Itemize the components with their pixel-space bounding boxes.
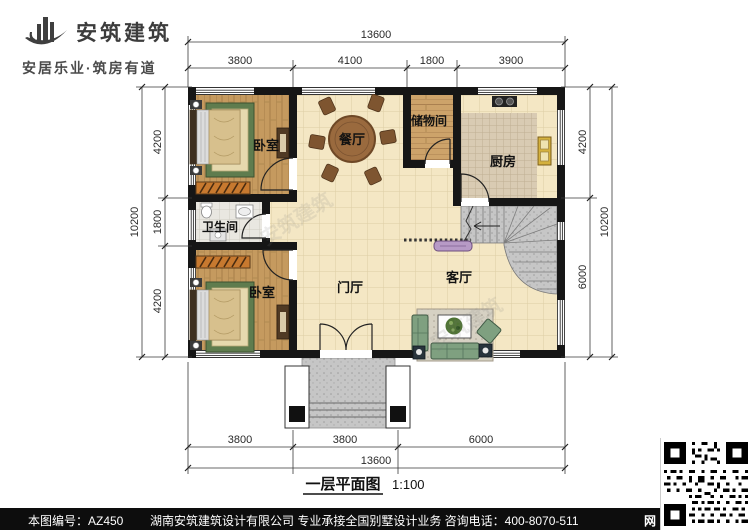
footer-bar: 本图编号：AZ450 湖南安筑建筑设计有限公司 专业承接全国别墅设计业务 咨询电… <box>0 508 750 530</box>
dim-top-seg-0: 3800 <box>228 55 252 67</box>
dim-bottom-total: 13600 <box>361 455 392 467</box>
caption-scale: 1:100 <box>392 477 425 492</box>
entry-porch <box>285 358 410 428</box>
dim-right-seg-1: 6000 <box>577 265 589 289</box>
room-label-bedroom-bottom: 卧室 <box>249 285 275 300</box>
dim-bottom-seg-0: 3800 <box>228 434 252 446</box>
dim-right-seg-0: 4200 <box>577 130 589 154</box>
room-label-bedroom-top: 卧室 <box>253 138 279 153</box>
room-label-bathroom: 卫生间 <box>202 219 238 234</box>
dim-left-seg-0: 4200 <box>152 130 164 154</box>
window-left-bathroom <box>188 210 196 240</box>
window-right-living <box>557 300 565 345</box>
dim-bottom-seg-1: 3800 <box>333 434 357 446</box>
dim-bottom-seg-2: 6000 <box>469 434 493 446</box>
dim-top-seg-3: 3900 <box>499 55 523 67</box>
dim-top-seg-1: 4100 <box>338 55 362 67</box>
floor-plan-page: 安筑建筑 安居乐业·筑房有道 <box>0 0 750 530</box>
porch-column-left <box>289 406 305 422</box>
dim-top-seg-2: 1800 <box>420 55 444 67</box>
window-right-kitchen <box>557 110 565 165</box>
dim-right-total: 10200 <box>599 207 611 238</box>
window-top-kitchen <box>478 87 537 95</box>
dresser-bedroom-bottom <box>277 305 289 339</box>
room-label-dining: 餐厅 <box>338 132 365 147</box>
dim-top-total: 13600 <box>361 29 392 41</box>
dim-left-seg-1: 1800 <box>152 210 164 234</box>
caption: 一层平面图 1:100 <box>303 476 425 494</box>
room-label-kitchen: 厨房 <box>490 154 516 169</box>
room-label-foyer: 门厅 <box>337 280 363 295</box>
wardrobe-bottom <box>196 256 250 268</box>
wardrobe-top <box>196 182 250 194</box>
dim-left-total: 10200 <box>129 207 141 238</box>
company-contact-line: 湖南安筑建筑设计有限公司 专业承接全国别墅设计业务 咨询电话：400-8070-… <box>150 512 579 529</box>
floor-plan-drawing: 卧室 餐厅 储物间 厨房 卫生间 卧室 门厅 客厅 安筑建筑 安筑建筑 <box>0 0 750 530</box>
web-badge: 网 <box>644 512 656 529</box>
room-label-storage: 储物间 <box>411 113 447 128</box>
drawing-number: 本图编号：AZ450 <box>28 512 123 529</box>
caption-title: 一层平面图 <box>305 476 380 493</box>
window-top-bedroom <box>196 87 254 95</box>
qr-code <box>660 438 750 530</box>
dim-left-seg-2: 4200 <box>152 289 164 313</box>
room-label-living: 客厅 <box>446 270 472 285</box>
window-top-dining <box>302 87 375 95</box>
window-right-stairs <box>557 222 565 240</box>
porch-column-right <box>390 406 406 422</box>
